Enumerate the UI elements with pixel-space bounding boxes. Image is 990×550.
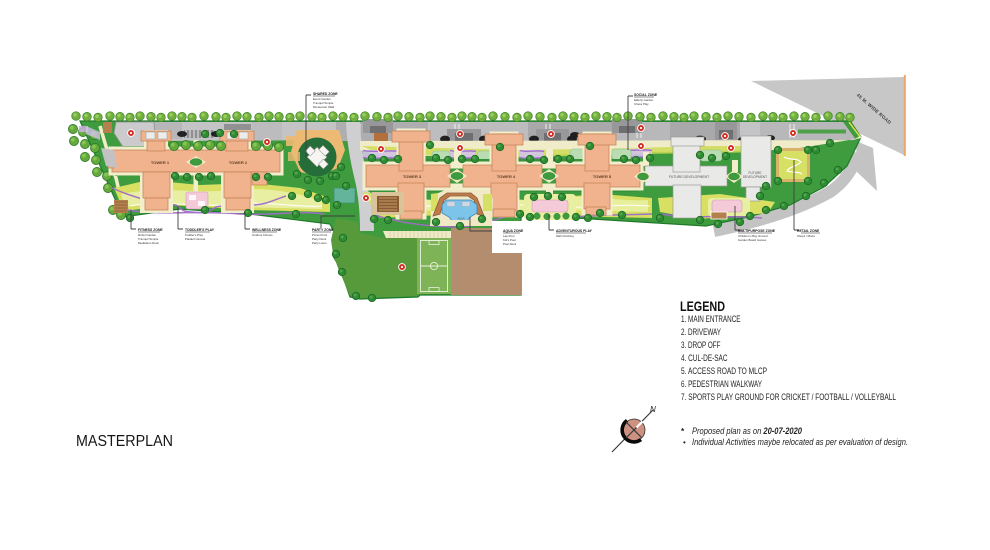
svg-text:TOWER 2: TOWER 2 — [229, 160, 248, 165]
svg-text:WELLNESS ZONE: WELLNESS ZONE — [252, 228, 282, 232]
svg-text:DEVELOPMENT: DEVELOPMENT — [743, 175, 767, 179]
svg-text:Outdoor Fitness: Outdoor Fitness — [252, 233, 273, 237]
svg-text:FUTURE DEVELOPMENT: FUTURE DEVELOPMENT — [669, 175, 709, 179]
svg-text:1. MAIN ENTRANCE: 1. MAIN ENTRANCE — [681, 314, 741, 324]
svg-text:Shops / Plaza: Shops / Plaza — [797, 234, 815, 238]
svg-text:Proposed plan as on 20-07-2020: Proposed plan as on 20-07-2020 — [692, 426, 802, 436]
svg-text:MASTERPLAN: MASTERPLAN — [76, 433, 173, 450]
svg-text:Party Lawn: Party Lawn — [312, 241, 327, 245]
svg-text:•: • — [683, 438, 686, 447]
svg-text:N: N — [650, 405, 656, 414]
svg-text:SHARED ZONE: SHARED ZONE — [313, 92, 338, 96]
svg-text:2. DRIVEWAY: 2. DRIVEWAY — [681, 327, 721, 337]
svg-text:RETAIL ZONE: RETAIL ZONE — [797, 229, 820, 233]
svg-text:PARTY ZONE: PARTY ZONE — [312, 228, 334, 232]
svg-text:SOCIAL ZONE: SOCIAL ZONE — [634, 93, 658, 97]
svg-text:TOWER 4: TOWER 4 — [497, 174, 516, 179]
svg-text:Meditation Deck: Meditation Deck — [138, 241, 159, 245]
svg-text:AQUA ZONE: AQUA ZONE — [503, 229, 524, 233]
svg-text:TODDLER'S PLAY: TODDLER'S PLAY — [185, 228, 215, 232]
svg-text:Chess Play: Chess Play — [634, 102, 649, 106]
svg-text:TOWER 5: TOWER 5 — [593, 174, 612, 179]
svg-text:TOWER 1: TOWER 1 — [151, 160, 170, 165]
svg-text:MULTIPURPOSE ZONE: MULTIPURPOSE ZONE — [738, 229, 776, 233]
svg-text:Wall Climbing: Wall Climbing — [556, 234, 574, 238]
svg-text:4. CUL-DE-SAC: 4. CUL-DE-SAC — [681, 353, 728, 363]
svg-text:7. SPORTS PLAY GROUND FOR CRIC: 7. SPORTS PLAY GROUND FOR CRICKET / FOOT… — [681, 392, 896, 402]
svg-text:TOWER 3: TOWER 3 — [403, 174, 422, 179]
svg-text:3. DROP OFF: 3. DROP OFF — [681, 340, 721, 350]
svg-text:Pool Deck: Pool Deck — [503, 242, 517, 246]
svg-text:Garden Board Games: Garden Board Games — [738, 238, 767, 242]
svg-text:ADVENTUROUS PLAY: ADVENTUROUS PLAY — [556, 229, 593, 233]
svg-text:Plaided Canvas: Plaided Canvas — [185, 237, 206, 241]
svg-text:AQUA: AQUA — [457, 217, 465, 221]
svg-text:Montessori Walk: Montessori Walk — [313, 105, 335, 109]
svg-text:LEGEND: LEGEND — [680, 299, 725, 314]
svg-text:Individual Activities maybe re: Individual Activities maybe relocated as… — [692, 437, 908, 447]
svg-text:FITNESS ZONE: FITNESS ZONE — [138, 228, 163, 232]
svg-text:5. ACCESS ROAD TO MLCP: 5. ACCESS ROAD TO MLCP — [681, 366, 767, 376]
svg-text:6. PEDESTRIAN WALKWAY: 6. PEDESTRIAN WALKWAY — [681, 379, 762, 389]
